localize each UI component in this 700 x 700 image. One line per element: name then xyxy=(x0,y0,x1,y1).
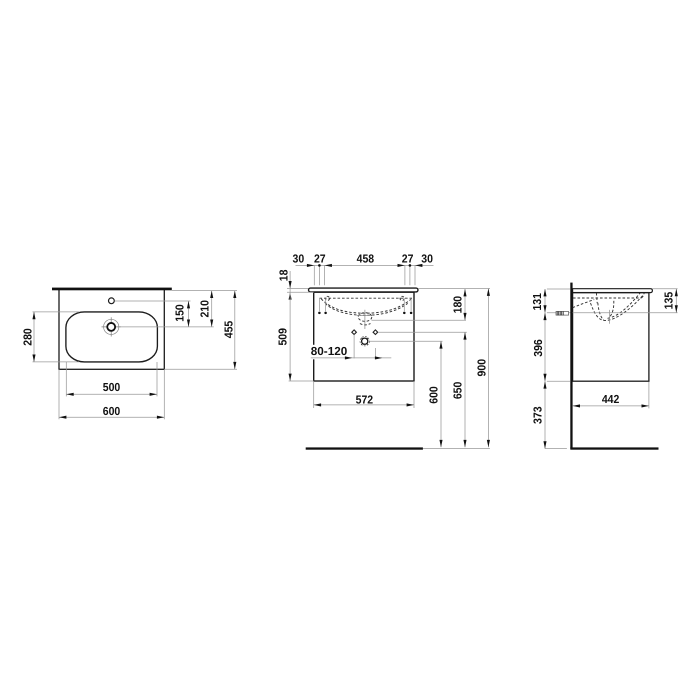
svg-text:150: 150 xyxy=(174,304,187,322)
svg-text:30: 30 xyxy=(421,253,433,266)
svg-text:600: 600 xyxy=(428,386,441,404)
svg-text:509: 509 xyxy=(277,328,290,346)
svg-text:442: 442 xyxy=(602,393,620,406)
svg-text:396: 396 xyxy=(532,339,545,357)
svg-text:27: 27 xyxy=(402,253,414,266)
svg-text:650: 650 xyxy=(452,382,465,400)
svg-text:131: 131 xyxy=(531,293,544,311)
svg-text:572: 572 xyxy=(356,393,374,406)
svg-text:180: 180 xyxy=(452,296,465,314)
svg-text:80-120: 80-120 xyxy=(311,345,348,358)
svg-text:135: 135 xyxy=(663,291,676,309)
svg-text:30: 30 xyxy=(293,253,305,266)
svg-text:500: 500 xyxy=(103,381,121,394)
svg-text:210: 210 xyxy=(198,300,211,318)
svg-text:900: 900 xyxy=(475,359,488,377)
svg-text:18: 18 xyxy=(278,269,291,281)
svg-text:280: 280 xyxy=(22,328,35,346)
svg-text:455: 455 xyxy=(222,320,235,338)
svg-text:27: 27 xyxy=(314,253,326,266)
svg-text:458: 458 xyxy=(357,253,375,266)
svg-text:600: 600 xyxy=(103,405,121,418)
svg-text:373: 373 xyxy=(532,406,545,424)
